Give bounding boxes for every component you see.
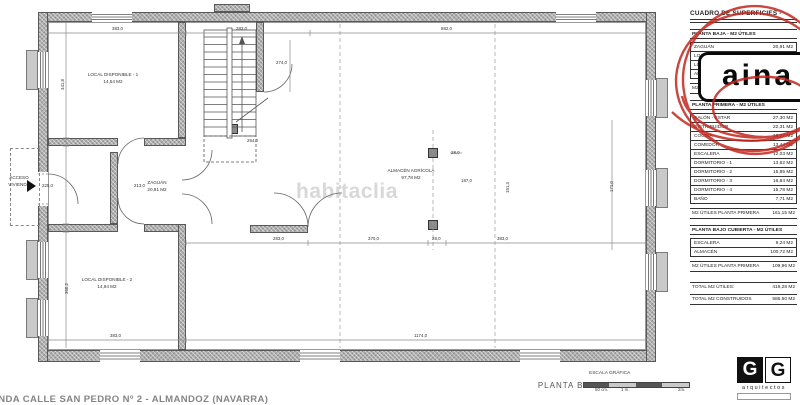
dimension-label: 28,0 <box>451 150 460 155</box>
dimension-label: 283,0 <box>273 236 284 241</box>
dimension-label: 28,0 <box>432 236 441 241</box>
dimension-label: 341,8 <box>60 79 65 90</box>
dimension-label: 151,3 <box>505 182 510 193</box>
room-label: ALMACÉN AGRÍCOLA97,78 M2 <box>388 168 435 182</box>
room-label: LOCAL DISPONIBLE - 114,54 M2 <box>88 72 138 86</box>
dimension-label: 213,0 <box>134 183 145 188</box>
dimension-label: 187,0 <box>461 178 472 183</box>
dimension-label: 1174,0 <box>414 333 427 338</box>
dimension-label: 283,0 <box>236 26 247 31</box>
dimension-label: 225,0 <box>42 183 53 188</box>
dimension-label: 383,0 <box>112 26 123 31</box>
dimension-label: 882,0 <box>441 26 452 31</box>
dimension-label: 360,2 <box>64 283 69 294</box>
room-label: LOCAL DISPONIBLE - 214,94 M2 <box>82 277 132 291</box>
dimension-label: 171,0 <box>609 181 614 192</box>
dimension-label: 274,0 <box>276 60 287 65</box>
stamp-red-circle <box>660 0 800 175</box>
room-label: ZAGUÁN20,91 M2 <box>147 180 166 194</box>
dimension-label: 383,0 <box>110 333 121 338</box>
access-arrow-icon <box>27 180 36 192</box>
dimension-label: 264,0 <box>247 138 258 143</box>
dimension-label: 383,0 <box>497 236 508 241</box>
dimension-label: 370,0 <box>368 236 379 241</box>
